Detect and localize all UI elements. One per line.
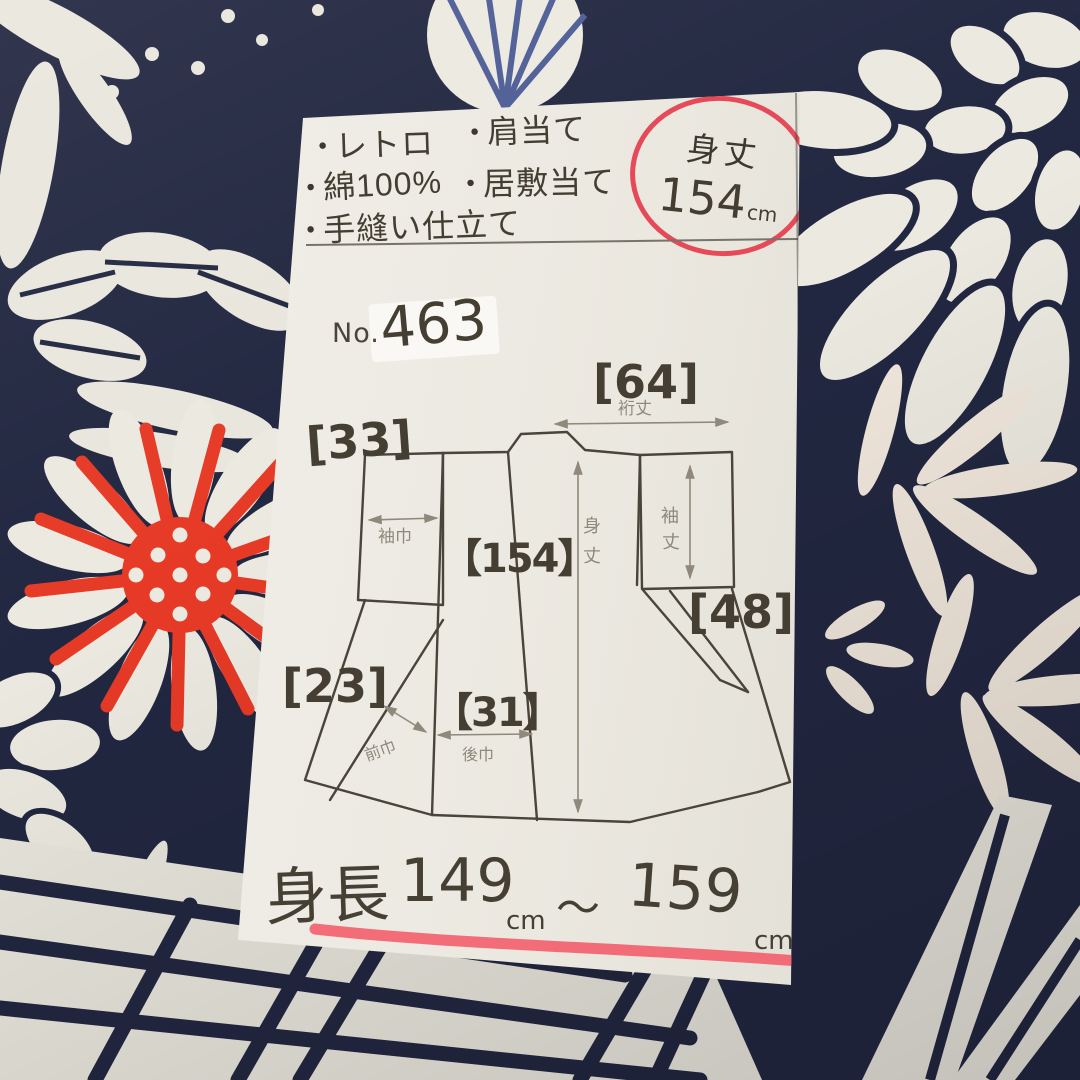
sodetake-value: [48] [688, 585, 794, 639]
maehaba-value: [23] [282, 659, 388, 713]
photo: ●レトロ ●綿100% ●手縫い仕立て ●肩当て ●居敷当て 身丈 154 cm… [0, 0, 1080, 1080]
maehaba-arrow [384, 706, 426, 732]
item-number-prefix: No. [332, 318, 380, 349]
bullet-dot: ● [318, 137, 328, 154]
mitake-badge-unit: cm [746, 200, 779, 227]
bullet-dot: ● [306, 178, 316, 195]
bullet-dot: ● [306, 220, 316, 237]
bullet-dot: ● [470, 123, 480, 140]
sodehaba-label: 袖巾 [378, 527, 412, 547]
ushirohaba-label: 後巾 [462, 745, 494, 764]
sodehaba-value: [33] [304, 410, 414, 471]
sodetake-label-2: 丈 [662, 532, 680, 553]
ushirohaba-value: 【31】 [433, 690, 561, 736]
bullet-label: 綿100% [322, 163, 443, 205]
yuki-value: [64] [593, 355, 699, 409]
yuki-arrow [555, 422, 728, 424]
bullet-label: 肩当て [487, 111, 587, 150]
kimono-measurement-diagram: 裄丈 袖巾 袖 丈 身 丈 前巾 後巾 [64] [33] 【154】 [48]… [280, 350, 810, 840]
sodetake-label-1: 袖 [661, 506, 679, 527]
mitake-value: 【154】 [442, 536, 596, 582]
mitake-arrow-label-1: 身 [583, 516, 601, 537]
mitake-badge-label: 身丈 [685, 121, 764, 176]
bullet-label: 居敷当て [483, 164, 616, 202]
bullet-item: ●肩当て [469, 104, 587, 154]
bullet-item: ●居敷当て [466, 157, 616, 206]
height-from: 149 [400, 846, 515, 916]
sodehaba-arrow [369, 518, 437, 520]
bullet-dot: ● [466, 174, 475, 191]
daisy-red-center [122, 517, 238, 633]
measure-arrows [369, 422, 728, 812]
mitake-badge-value: 154 [656, 167, 749, 230]
